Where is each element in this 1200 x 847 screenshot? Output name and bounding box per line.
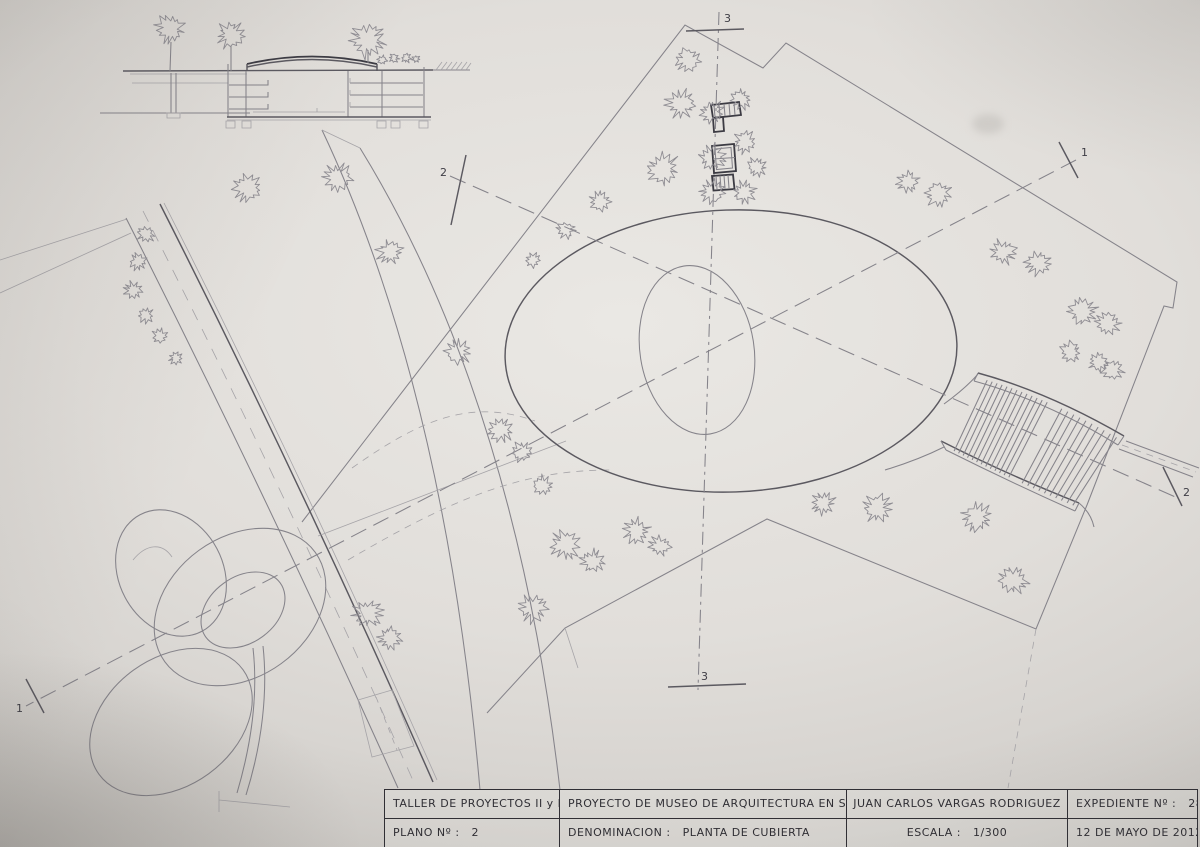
tree-symbol [961,502,992,533]
secondary-building-roofs [61,490,356,826]
pergola-slat [1009,402,1047,477]
marker-1-bottom-tick [26,679,44,713]
expediente-label: EXPEDIENTE Nº : [1076,797,1176,810]
tree-symbol [138,308,153,324]
titleblock-cell-escala: ESCALA : 1/300 [847,819,1068,847]
titleblock-cell-expediente: EXPEDIENTE Nº : 28.721 [1068,790,1197,819]
tree-symbol [895,170,920,193]
plano-label: PLANO Nº : [393,826,460,839]
site-plan-drawing: 3 3 2 2 1 1 [0,0,1200,847]
tree-symbol [377,55,388,64]
escala-label: ESCALA : [907,826,961,839]
tree-symbol [675,48,701,72]
tree-symbol [443,339,470,366]
escala-value: 1/300 [973,826,1007,839]
pergola-slat [995,396,1032,471]
tree-symbol [351,601,385,626]
pergola-bridge [885,373,1199,527]
fecha-text: 12 DE MAYO DE 2012 [1076,826,1197,839]
titleblock-cell-proyecto: PROYECTO DE MUSEO DE ARQUITECTURA EN SEV… [560,790,847,819]
title-block: TALLER DE PROYECTOS II y III PROYECTO DE… [384,789,1198,847]
pergola-slat [986,392,1022,467]
marker-2-left-tick [451,155,466,225]
tree-symbol [589,191,612,212]
eraser-smudge [972,114,1004,134]
tree-symbol [123,280,143,298]
tree-symbol [648,535,673,556]
pergola-slat [1000,398,1038,473]
tree-symbol [734,180,758,204]
tree-symbol [990,239,1018,266]
titleblock-cell-plano: PLANO Nº : 2 [385,819,560,847]
tree-symbol [924,183,952,207]
trees-layer [123,48,1125,650]
tree-symbol [137,227,155,242]
marker-3-top-label: 3 [724,12,731,25]
pergola-slat [981,390,1017,464]
proyecto-text: PROYECTO DE MUSEO DE ARQUITECTURA EN SEV… [568,797,847,810]
tree-symbol [412,56,420,63]
tree-symbol [647,151,677,186]
pergola-slat [968,385,1003,458]
marker-2-right-tick [1163,467,1182,506]
titleblock-cell-taller: TALLER DE PROYECTOS II y III [385,790,560,819]
roads [0,130,610,790]
tree-symbol [556,223,576,240]
pergola-slat [977,388,1012,462]
marker-1-top-label: 1 [1081,146,1088,159]
expediente-value: 28.721 [1188,797,1197,810]
tree-symbol [152,328,168,343]
tree-symbol [863,493,893,522]
tree-symbol [513,442,532,463]
marker-2-right-label: 2 [1183,486,1190,499]
elevation-trees [154,15,387,60]
tree-symbol [169,352,182,365]
tree-symbol [664,88,696,118]
roof-oculus-ellipse [627,257,766,443]
marker-3-bottom-tick [668,684,746,687]
denominacion-label: DENOMINACION : [568,826,671,839]
tree-symbol [218,22,246,49]
tree-symbol [376,626,402,650]
tree-symbol [534,474,553,495]
tree-symbol [1094,312,1122,334]
tree-symbol [1023,251,1051,277]
marker-1-bottom-label: 1 [16,702,23,715]
pergola-slat [972,387,1007,460]
autor-text: JUAN CARLOS VARGAS RODRIGUEZ [853,797,1061,810]
titleblock-cell-fecha: 12 DE MAYO DE 2012 [1068,819,1197,847]
tree-symbol [526,253,541,269]
building-cross-section [100,15,471,128]
pergola-slat [990,394,1027,469]
tree-symbol [550,530,580,560]
tree-symbol [389,54,400,62]
tree-symbol [154,15,186,44]
tree-symbol [734,131,754,155]
tree-symbol [579,548,605,572]
tree-symbol [402,53,412,63]
drawing-sheet: 3 3 2 2 1 1 TALLER DE PROYEC [0,0,1200,847]
tree-symbol [1067,297,1099,324]
ground-hatch [436,62,471,70]
pergola-slat [1004,400,1042,475]
tree-symbol [1100,361,1125,379]
titleblock-cell-denominacion: DENOMINACION : PLANTA DE CUBIERTA [560,819,847,847]
denominacion-value: PLANTA DE CUBIERTA [683,826,810,839]
plano-value: 2 [472,826,480,839]
tree-symbol [730,89,750,111]
tree-symbol [1060,340,1080,362]
tree-symbol [375,240,404,264]
main-roof-ellipse [500,202,962,500]
marker-2-left-label: 2 [440,166,447,179]
tree-symbol [748,158,766,178]
tree-symbol [998,567,1030,593]
pergola-slats [954,380,1116,505]
titleblock-cell-autor: JUAN CARLOS VARGAS RODRIGUEZ [847,790,1068,819]
tree-symbol [231,173,259,202]
section-lines: 3 3 2 2 1 1 [16,12,1190,715]
pergola-slat [963,383,997,455]
tree-symbol [488,419,513,443]
tree-symbol [1089,352,1109,372]
tree-symbol [812,493,836,517]
section-line-3 [698,12,719,690]
taller-text: TALLER DE PROYECTOS II y III [393,797,560,810]
marker-3-top-tick [686,29,744,31]
roof-bushes [377,53,420,64]
marker-3-bottom-label: 3 [701,670,708,683]
tree-symbol [622,516,651,543]
tree-symbol [322,163,354,192]
